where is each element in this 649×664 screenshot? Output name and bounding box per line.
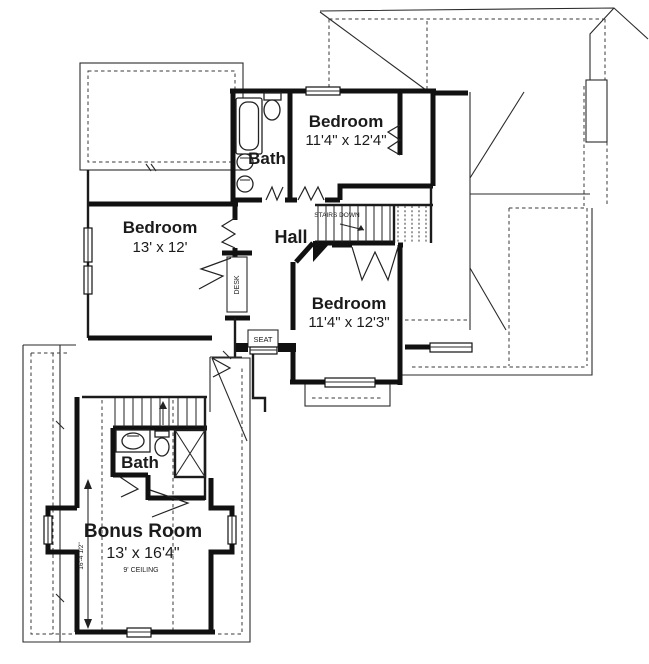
toilet-icon [264, 93, 281, 120]
stairs-bonus [115, 398, 205, 427]
dimension-line [84, 479, 92, 629]
hall-label: Hall [274, 227, 307, 247]
desk-label: DESK [234, 275, 241, 294]
stairs-down-label: STAIRS DOWN [314, 212, 360, 219]
bedroom-middle-dims: 11'4" x 12'3" [308, 314, 389, 331]
bonus-room-ceiling: 9' CEILING [123, 567, 158, 574]
floor-plan-drawing: Bedroom 11'4" x 12'4" Bath Bedroom 13' x… [0, 0, 649, 664]
bonus-room-dims: 13' x 16'4" [106, 545, 179, 562]
bath-upper-label: Bath [248, 149, 286, 168]
vertical-dimension-label: 16'-4 1/2" [78, 542, 85, 570]
bonus-room-name: Bonus Room [84, 521, 202, 542]
bedroom-left-name: Bedroom [123, 218, 198, 237]
bedroom-top-name: Bedroom [309, 112, 384, 131]
seat-label: SEAT [253, 335, 272, 344]
bedroom-left-dims: 13' x 12' [133, 239, 188, 256]
vanity-sink-icon [116, 430, 150, 452]
chase-closet-x [175, 430, 205, 477]
bath-lower-label: Bath [121, 453, 159, 472]
floor-plan-page: Bedroom 11'4" x 12'4" Bath Bedroom 13' x… [0, 0, 649, 664]
bedroom-top-dims: 11'4" x 12'4" [305, 132, 386, 149]
bedroom-middle-name: Bedroom [312, 294, 387, 313]
bathtub-icon [236, 98, 262, 154]
